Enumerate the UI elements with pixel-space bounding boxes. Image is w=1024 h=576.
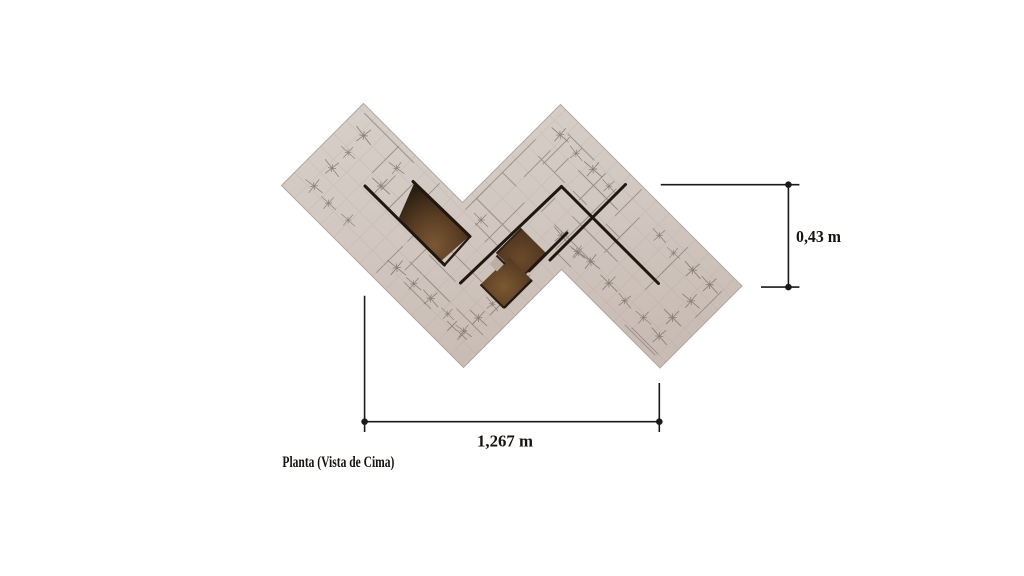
svg-text:Planta (Vista de Cima): Planta (Vista de Cima) <box>282 454 394 471</box>
svg-text:0,43 m: 0,43 m <box>796 227 841 246</box>
svg-text:1,267 m: 1,267 m <box>477 432 533 451</box>
